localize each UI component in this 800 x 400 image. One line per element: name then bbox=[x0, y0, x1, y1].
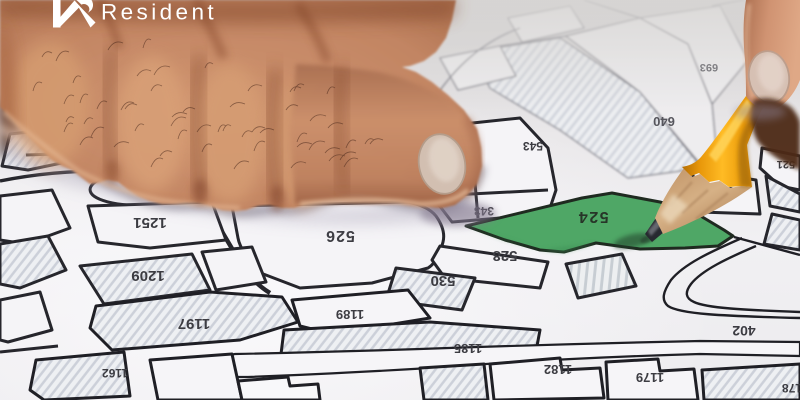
svg-text:1197: 1197 bbox=[178, 315, 211, 332]
svg-text:1209: 1209 bbox=[131, 267, 164, 284]
svg-text:Resident: Resident bbox=[101, 0, 217, 25]
svg-text:524: 524 bbox=[577, 208, 608, 225]
svg-text:1189: 1189 bbox=[336, 307, 364, 322]
svg-text:526: 526 bbox=[325, 227, 355, 244]
svg-text:402: 402 bbox=[732, 323, 756, 339]
svg-text:543: 543 bbox=[523, 139, 543, 153]
svg-text:528: 528 bbox=[492, 247, 517, 264]
svg-text:1251: 1251 bbox=[133, 214, 166, 231]
svg-text:1179: 1179 bbox=[636, 370, 664, 385]
svg-text:1162: 1162 bbox=[102, 366, 128, 380]
svg-text:1185: 1185 bbox=[454, 341, 482, 356]
svg-text:178: 178 bbox=[782, 381, 800, 395]
svg-text:1182: 1182 bbox=[544, 362, 572, 377]
svg-text:640: 640 bbox=[653, 114, 675, 129]
svg-text:530: 530 bbox=[430, 272, 455, 289]
